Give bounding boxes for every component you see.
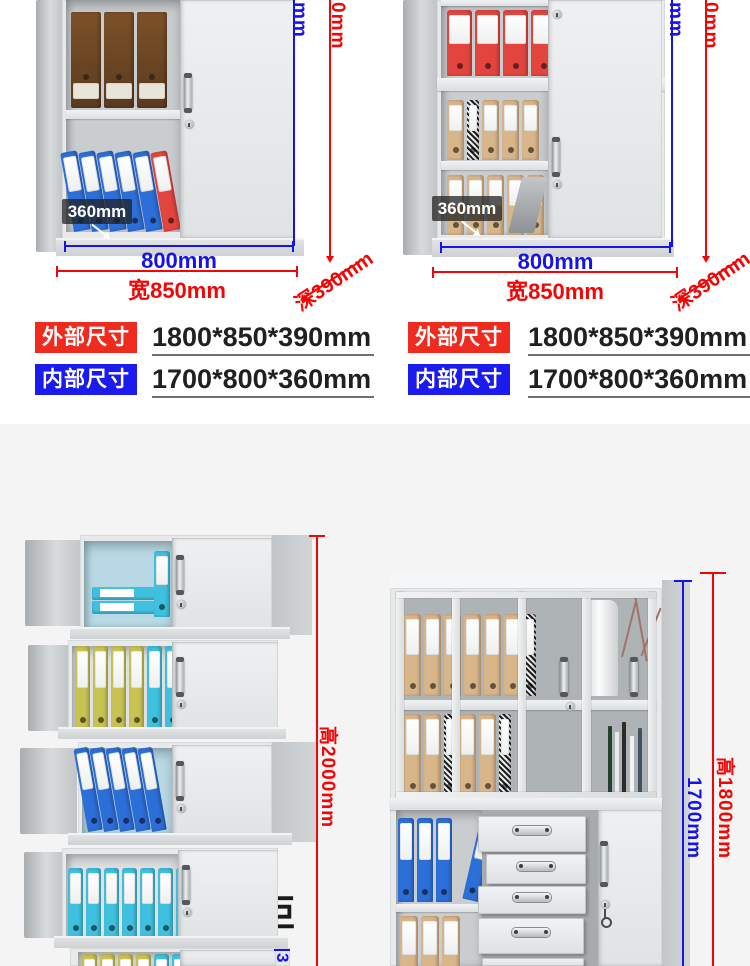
external-size-badge: 外部尺寸 <box>408 322 510 353</box>
cyan-binder <box>147 646 162 730</box>
internal-size-badge: 内部尺寸 <box>408 364 510 395</box>
s1-open-door <box>25 540 82 626</box>
door-lock <box>553 180 562 189</box>
top-shelf-edge <box>441 0 548 6</box>
external-size-badge: 外部尺寸 <box>35 322 137 353</box>
glass-mullion <box>518 592 526 798</box>
kraft-binder <box>484 614 501 696</box>
kraft-binder <box>482 100 499 160</box>
s1-door <box>172 538 272 632</box>
external-size-value: 1800*850*390mm <box>152 322 374 356</box>
blue-binder <box>417 818 433 902</box>
glass-top-binders <box>404 612 536 696</box>
olive-binder <box>93 646 108 730</box>
olive-binder <box>100 954 115 966</box>
kraft-binder <box>502 100 519 160</box>
outer-width-line <box>56 270 298 272</box>
s2-binders <box>75 646 180 730</box>
marker-pen <box>615 732 619 796</box>
s2-base <box>58 727 286 739</box>
brown-binder <box>71 12 101 108</box>
s1-handle <box>176 556 184 594</box>
olive-binder <box>136 954 151 966</box>
kraft-binder-row <box>400 916 460 966</box>
s1-flat-binder <box>92 587 158 600</box>
s5-door <box>180 950 276 966</box>
cyan-binder <box>86 868 101 938</box>
depth-inner-label: 360mm <box>62 199 132 224</box>
height-label: 高2000mm <box>316 726 343 828</box>
cabinet-top-face <box>390 572 690 589</box>
width-partial-cap <box>274 949 290 951</box>
lower-door-handle <box>600 842 608 886</box>
cyan-binder <box>104 868 119 938</box>
glass-shelf <box>396 700 656 710</box>
s3-binders <box>88 748 165 832</box>
s3-lock <box>177 804 186 813</box>
inner-height-partial-label: mm <box>664 2 686 38</box>
red-binder-binder <box>475 10 500 76</box>
inner-width-line <box>64 245 294 247</box>
door-lock <box>185 120 194 129</box>
blue-binder <box>398 818 414 902</box>
kraft-binder <box>447 100 464 160</box>
zebra-binder <box>467 100 479 160</box>
closed-door <box>548 0 662 238</box>
s4-handle <box>182 866 190 904</box>
inner-height-line <box>682 580 684 966</box>
depth-inner-label: 360mm <box>432 196 502 221</box>
cyan-binder <box>154 954 169 966</box>
drawer-5 <box>482 958 584 966</box>
product-detail-page: mm 0mm 360mm 800mm 宽850mm 深390mm mm 0mm <box>0 0 750 966</box>
glass-mullion <box>582 592 591 798</box>
cyan-binder <box>154 551 170 617</box>
hanging-key <box>604 909 606 918</box>
outer-height-partial-label: 0mm <box>326 2 348 49</box>
s4-base <box>54 936 288 948</box>
drawer-1-handle <box>513 826 551 835</box>
glass-mullion <box>452 592 460 798</box>
closed-door <box>180 0 294 238</box>
kraft-binder <box>421 916 439 966</box>
open-door-panel <box>36 0 62 252</box>
s2-door <box>172 642 278 735</box>
sliding-door-handle-right <box>630 658 638 696</box>
outer-width-label: 宽850mm <box>56 273 298 305</box>
cyan-binder <box>140 868 155 938</box>
kraft-binder <box>522 100 539 160</box>
s1-base <box>70 627 290 639</box>
kraft-binder <box>459 714 476 796</box>
internal-size-badge: 内部尺寸 <box>35 364 137 395</box>
drawer-3-handle <box>513 893 551 902</box>
s2-handle <box>176 658 184 696</box>
glass-frame-left <box>396 592 404 798</box>
cyan-binder <box>68 868 83 938</box>
olive-binder <box>111 646 126 730</box>
kraft-binder <box>464 614 481 696</box>
s3-handle <box>176 762 184 800</box>
outer-height-label: 高1800mm <box>713 757 740 859</box>
inner-height-label: 1700mm <box>682 777 704 859</box>
mid-band <box>390 798 662 810</box>
s4-door <box>178 850 278 942</box>
s1-flat-binder <box>92 601 158 614</box>
internal-size-value: 1700*800*360mm <box>528 364 750 398</box>
s3-base <box>68 833 292 845</box>
brown-binder <box>137 12 167 108</box>
olive-binder <box>82 954 97 966</box>
s1-side-panel <box>272 535 312 635</box>
marker-pen <box>630 736 634 796</box>
binder-row-mid <box>447 97 539 160</box>
glass-frame-right <box>648 592 656 798</box>
box-file-row <box>71 12 167 108</box>
s4-lock <box>183 908 192 917</box>
door-handle <box>552 138 560 176</box>
blue-binder <box>436 818 452 902</box>
external-size-value: 1800*850*390mm <box>528 322 750 356</box>
red-binder-binder <box>503 10 528 76</box>
compartment-shelf <box>396 904 482 912</box>
cyan-binder <box>158 868 173 938</box>
binder-row-top <box>447 8 556 76</box>
shelf-divider <box>66 110 180 119</box>
upper-door-lock <box>553 10 562 19</box>
drawer-2-handle <box>517 862 555 871</box>
outer-width-label: 宽850mm <box>432 274 678 306</box>
kraft-binder <box>400 916 418 966</box>
product-image-three-shelf-cabinet: mm 0mm 360mm 800mm 宽850mm 深390mm <box>375 0 750 310</box>
sliding-door-handle-left <box>560 658 568 696</box>
cabinet-right-side <box>662 580 690 966</box>
olive-binder <box>118 954 133 966</box>
glass-frame-top <box>396 592 656 598</box>
olive-binder <box>129 646 144 730</box>
kraft-binder <box>404 614 421 696</box>
inner-width-line <box>440 246 671 248</box>
kraft-binder <box>404 714 421 796</box>
s3-door <box>172 745 272 839</box>
s4-binders <box>68 854 191 938</box>
product-image-two-door-cabinet: mm 0mm 360mm 800mm 宽850mm 深390mm <box>0 0 375 310</box>
inner-height-partial-label: mm <box>288 2 310 38</box>
s5-binders <box>82 954 187 966</box>
s1-lock <box>177 600 186 609</box>
shelf-divider <box>441 161 548 170</box>
internal-size-value: 1700*800*360mm <box>152 364 374 398</box>
zebra-binder <box>499 714 511 796</box>
red-binder-binder <box>447 10 472 76</box>
lower-right-door <box>598 810 662 966</box>
blue-binder-row <box>398 816 478 902</box>
glass-door-lock <box>566 702 575 711</box>
kraft-binder <box>442 916 460 966</box>
kraft-binder <box>424 614 441 696</box>
s3-open-door <box>20 748 77 834</box>
width-partial-label: 3 <box>272 953 292 963</box>
olive-binder <box>75 646 90 730</box>
outer-height-partial-label: 0mm <box>699 2 721 49</box>
kraft-binder <box>479 714 496 796</box>
s2-lock <box>177 700 186 709</box>
s2-open-door <box>28 645 68 731</box>
s1-binder <box>154 549 170 617</box>
lower-door-lock <box>601 900 610 909</box>
drawer-4-handle <box>512 928 550 937</box>
outer-width-line <box>432 271 678 273</box>
door-handle <box>184 74 192 112</box>
marker-pen <box>622 722 626 796</box>
kraft-binder <box>424 714 441 796</box>
s4-open-door <box>24 852 64 938</box>
marker-pen <box>608 726 612 796</box>
marker-pen <box>638 728 642 796</box>
cyan-binder <box>122 868 137 938</box>
brown-binder <box>104 12 134 108</box>
s3-side-panel <box>272 742 316 842</box>
